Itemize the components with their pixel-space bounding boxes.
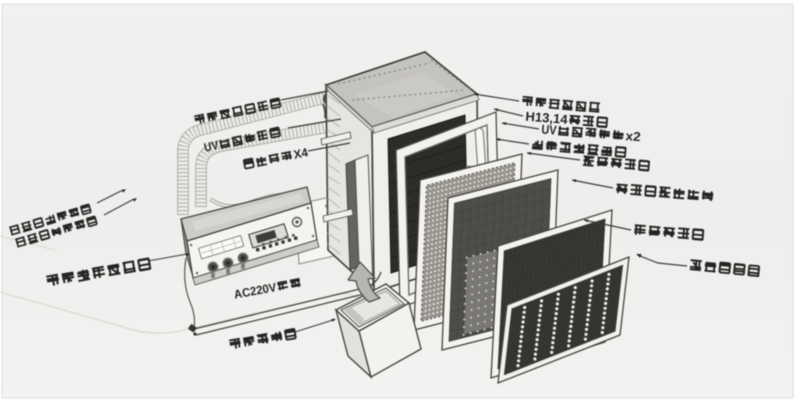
- svg-text:UV: UV: [203, 138, 220, 155]
- svg-text:UV: UV: [541, 122, 558, 138]
- svg-text:x2: x2: [625, 128, 641, 144]
- svg-text:X4: X4: [292, 145, 309, 162]
